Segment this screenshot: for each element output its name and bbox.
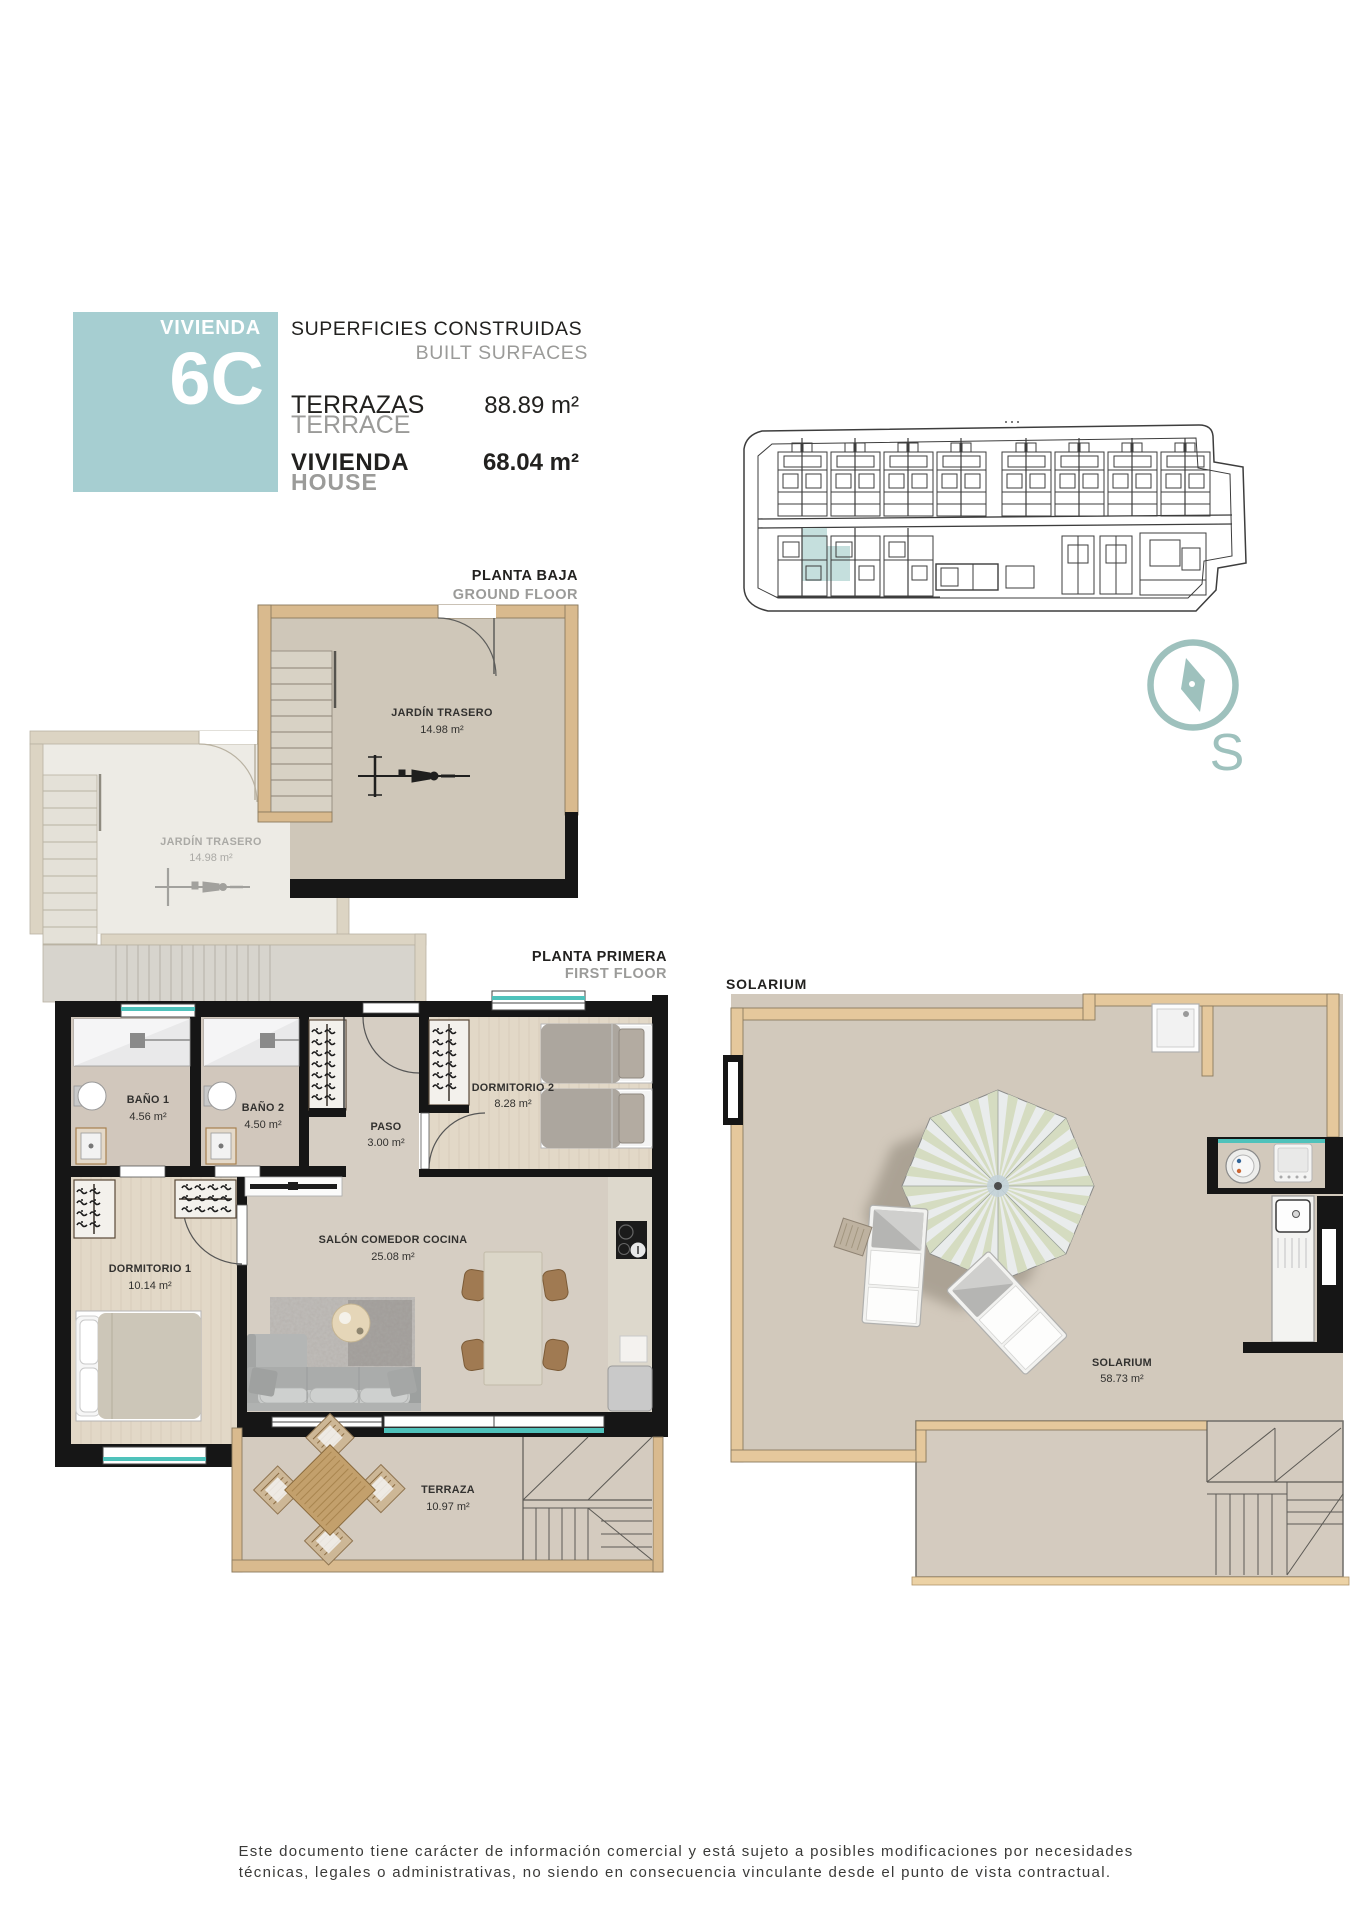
- svg-text:4.50 m²: 4.50 m²: [244, 1119, 282, 1131]
- svg-text:BAÑO 1: BAÑO 1: [127, 1093, 170, 1106]
- svg-text:SUPERFICIES CONSTRUIDAS: SUPERFICIES CONSTRUIDAS: [291, 318, 582, 340]
- svg-text:técnicas, legales o administra: técnicas, legales o administrativas, no …: [239, 1864, 1112, 1881]
- svg-text:PLANTA PRIMERA: PLANTA PRIMERA: [532, 949, 667, 965]
- svg-text:TERRACE: TERRACE: [291, 411, 410, 439]
- svg-text:10.14 m²: 10.14 m²: [128, 1280, 172, 1292]
- svg-text:GROUND FLOOR: GROUND FLOOR: [453, 587, 578, 603]
- svg-text:3.00 m²: 3.00 m²: [367, 1137, 405, 1149]
- svg-text:FIRST FLOOR: FIRST FLOOR: [565, 966, 667, 982]
- svg-text:4.56 m²: 4.56 m²: [129, 1111, 167, 1123]
- svg-text:8.28 m²: 8.28 m²: [494, 1098, 532, 1110]
- svg-text:PASO: PASO: [371, 1121, 402, 1133]
- svg-text:JARDÍN TRASERO: JARDÍN TRASERO: [391, 706, 493, 719]
- svg-text:HOUSE: HOUSE: [291, 469, 378, 495]
- svg-text:10.97 m²: 10.97 m²: [426, 1501, 470, 1513]
- svg-text:BUILT SURFACES: BUILT SURFACES: [416, 342, 588, 364]
- svg-text:SALÓN COMEDOR COCINA: SALÓN COMEDOR COCINA: [319, 1233, 468, 1246]
- svg-text:PLANTA BAJA: PLANTA BAJA: [472, 568, 578, 584]
- svg-text:JARDÍN TRASERO: JARDÍN TRASERO: [160, 835, 262, 848]
- svg-text:68.04 m²: 68.04 m²: [483, 449, 579, 476]
- svg-text:6C: 6C: [169, 337, 264, 420]
- svg-text:SOLARIUM: SOLARIUM: [1092, 1357, 1152, 1369]
- svg-text:VIVIENDA: VIVIENDA: [160, 317, 261, 339]
- svg-text:DORMITORIO 2: DORMITORIO 2: [472, 1082, 555, 1094]
- svg-text:S: S: [1210, 724, 1245, 782]
- svg-text:SOLARIUM: SOLARIUM: [726, 976, 807, 992]
- svg-text:58.73 m²: 58.73 m²: [1100, 1373, 1144, 1385]
- svg-text:TERRAZA: TERRAZA: [421, 1484, 475, 1496]
- svg-text:BAÑO 2: BAÑO 2: [242, 1101, 285, 1114]
- svg-text:25.08 m²: 25.08 m²: [371, 1251, 415, 1263]
- svg-text:14.98 m²: 14.98 m²: [420, 724, 464, 736]
- svg-text:14.98 m²: 14.98 m²: [189, 852, 233, 864]
- svg-text:88.89 m²: 88.89 m²: [484, 392, 579, 419]
- svg-text:Este documento tiene carácter: Este documento tiene carácter de informa…: [238, 1843, 1133, 1860]
- svg-text:DORMITORIO 1: DORMITORIO 1: [109, 1263, 192, 1275]
